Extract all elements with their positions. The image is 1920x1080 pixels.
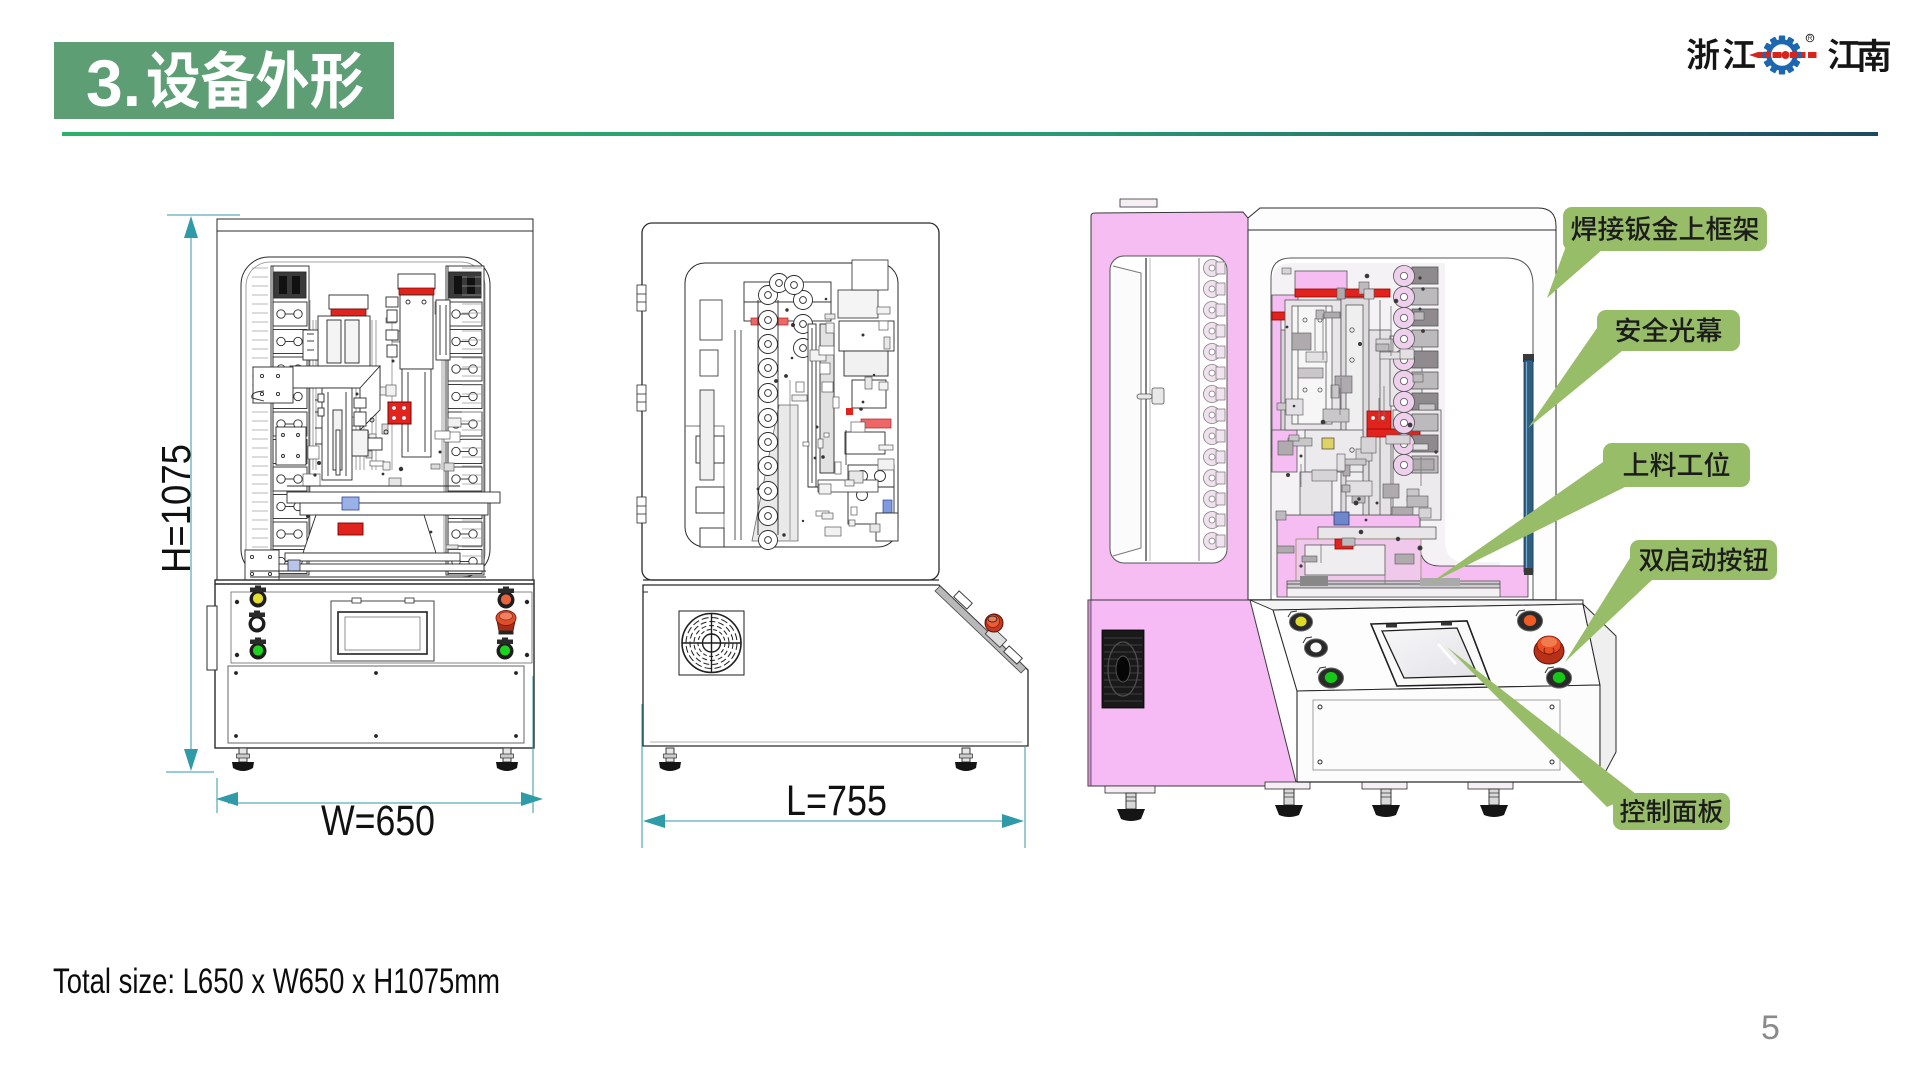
svg-text:H=1075: H=1075 — [153, 444, 199, 573]
svg-text:Total size: L650 x W650 x H107: Total size: L650 x W650 x H1075mm — [53, 962, 500, 1001]
svg-text:R: R — [1808, 36, 1813, 42]
svg-text:L=755: L=755 — [786, 777, 887, 825]
svg-text:3.: 3. — [86, 46, 141, 120]
svg-text:5: 5 — [1761, 1009, 1780, 1047]
svg-text:W=650: W=650 — [321, 797, 435, 845]
